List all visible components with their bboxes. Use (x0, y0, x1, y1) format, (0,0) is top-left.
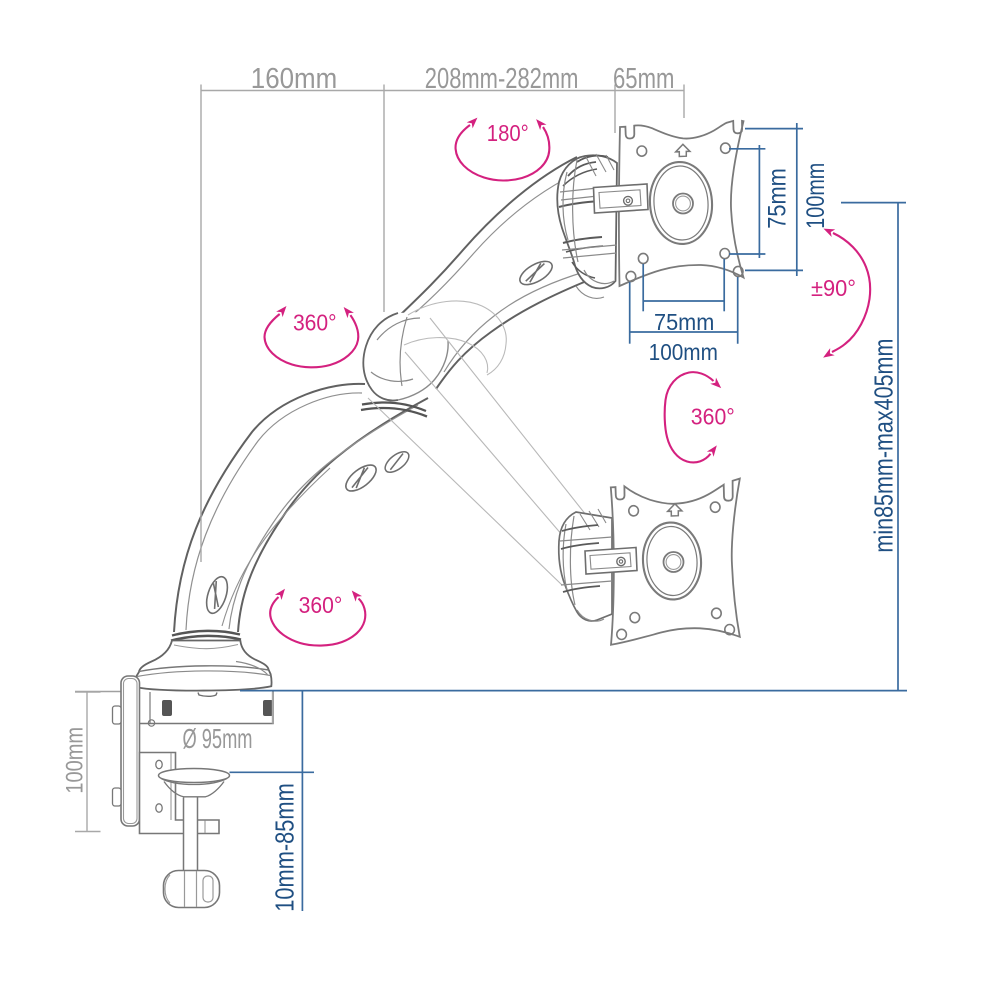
svg-text:65mm: 65mm (613, 63, 674, 95)
svg-text:100mm: 100mm (649, 339, 718, 365)
svg-text:Ø 95mm: Ø 95mm (183, 723, 253, 754)
svg-text:100mm: 100mm (62, 727, 89, 794)
svg-text:208mm-282mm: 208mm-282mm (425, 63, 579, 95)
svg-text:360°: 360° (691, 404, 735, 430)
svg-text:360°: 360° (293, 310, 337, 336)
svg-text:160mm: 160mm (251, 63, 337, 95)
svg-text:±90°: ±90° (811, 275, 856, 301)
svg-text:100mm: 100mm (802, 163, 830, 229)
svg-text:75mm: 75mm (764, 168, 792, 229)
svg-text:180°: 180° (487, 120, 529, 146)
svg-text:min85mm-max405mm: min85mm-max405mm (871, 339, 899, 553)
svg-text:10mm-85mm: 10mm-85mm (272, 783, 300, 912)
svg-text:360°: 360° (299, 592, 343, 618)
